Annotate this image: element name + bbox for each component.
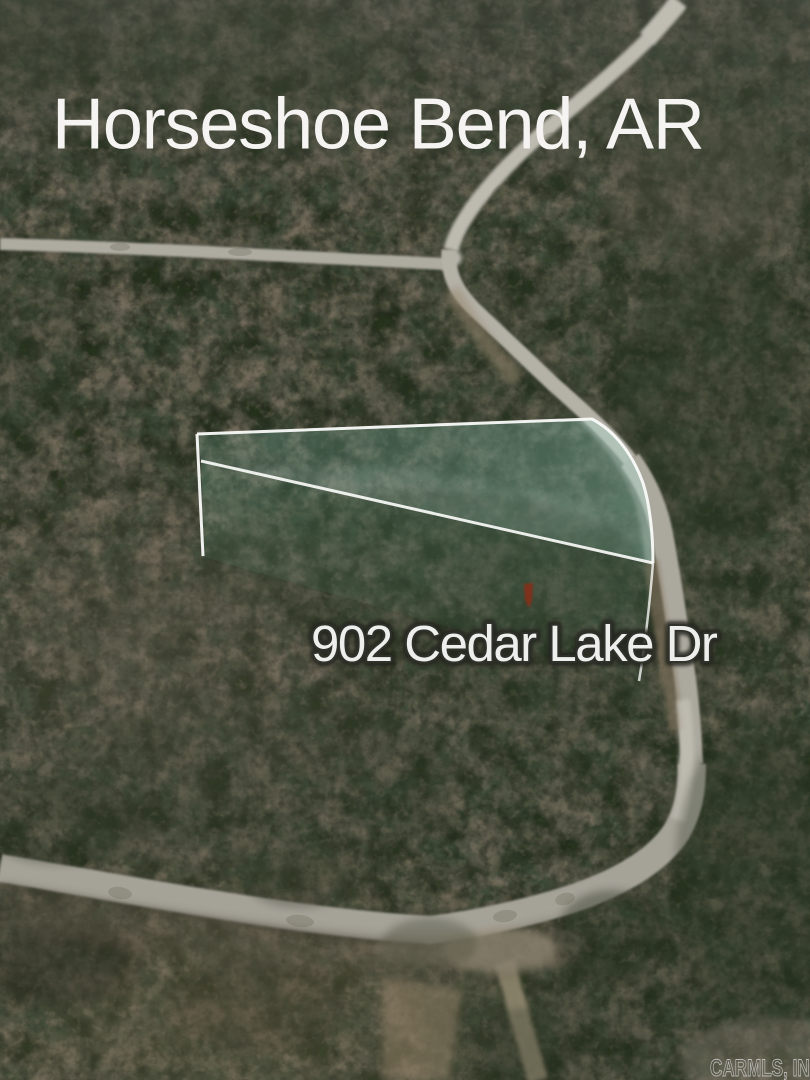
svg-text:CARMLS, INC: CARMLS, INC xyxy=(710,1055,810,1080)
svg-text:902 Cedar Lake Dr: 902 Cedar Lake Dr xyxy=(311,615,718,672)
svg-text:Horseshoe Bend, AR: Horseshoe Bend, AR xyxy=(52,85,704,165)
